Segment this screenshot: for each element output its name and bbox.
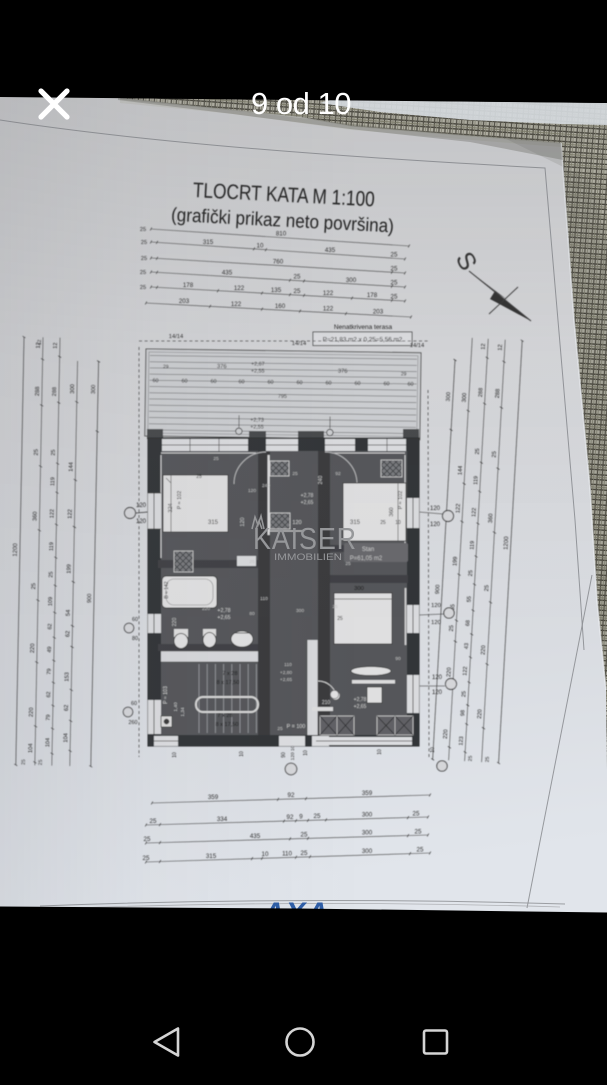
svg-text:9 od 10: 9 od 10 [251, 86, 351, 121]
